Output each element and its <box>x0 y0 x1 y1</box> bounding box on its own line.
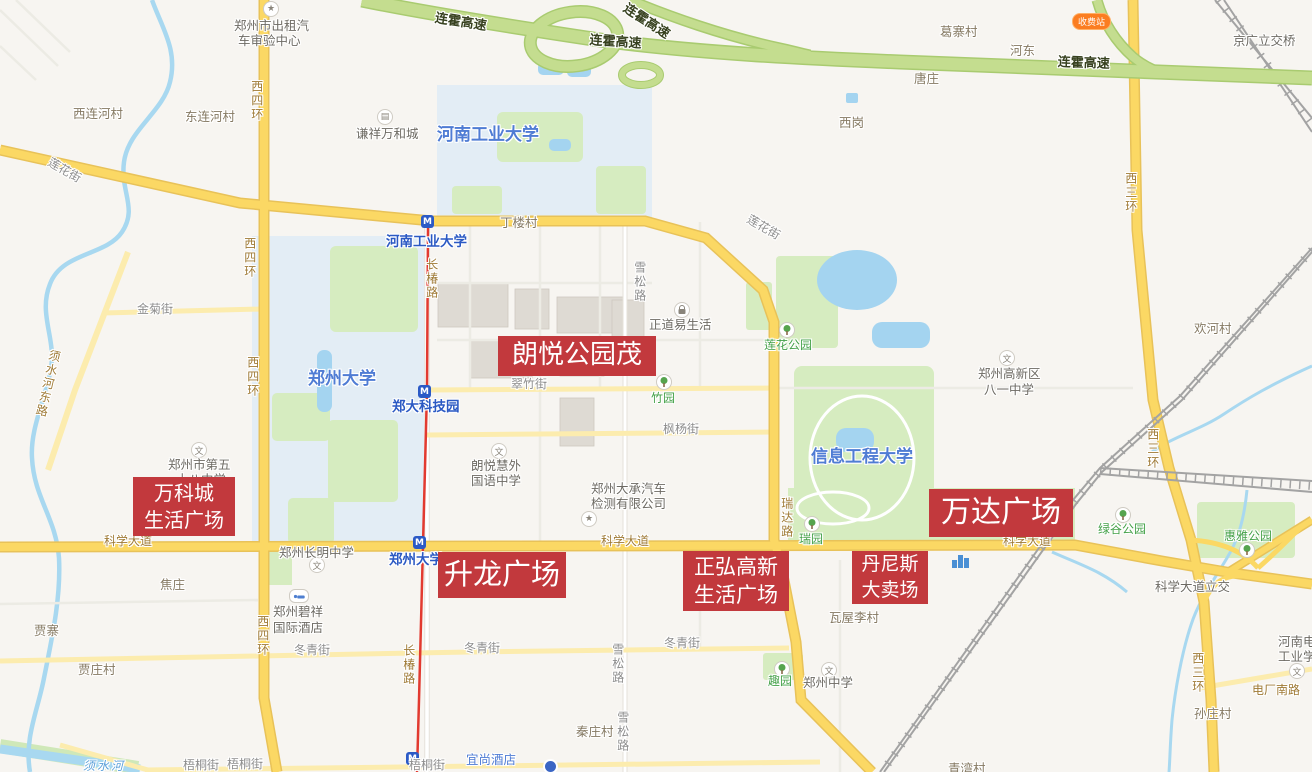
road-xisihuan-4: 西四环 <box>255 615 269 657</box>
street-jinjujie: 金菊街 <box>137 303 173 317</box>
poi-qianxiang-wanhecheng[interactable]: 谦祥万和城 <box>356 127 419 141</box>
tree-icon-lvgu <box>1115 507 1131 523</box>
poi-henan-dianli-line2[interactable]: 工业学 <box>1278 650 1312 664</box>
railway-layer <box>880 0 1312 772</box>
poi-yishang-hotel[interactable]: 宜尚酒店 <box>466 753 516 767</box>
landmark-wanda-plaza[interactable]: 万达广场 <box>929 489 1073 537</box>
street-wutongjie-2: 梧桐街 <box>227 758 263 772</box>
street-fengyangjie: 枫杨街 <box>663 423 699 437</box>
park-lvgu-gongyuan[interactable]: 绿谷公园 <box>1098 523 1146 537</box>
hwy-lianhuo-4: 连霍高速 <box>1057 56 1110 73</box>
street-xuesonglu-1: 雪松路 <box>632 261 646 303</box>
poi-zhengdao-yishenghuo[interactable]: 正道易生活 <box>649 318 712 332</box>
landmark-text: 生活广场 <box>694 581 778 609</box>
landmark-text: 生活广场 <box>144 507 224 534</box>
street-xuesonglu-3: 雪松路 <box>615 711 629 753</box>
school-icon-langyuehui: 文 <box>491 443 507 459</box>
poi-bixiang-hotel-line1[interactable]: 郑州碧祥 <box>273 605 323 619</box>
star-icon-1: ★ <box>263 1 279 17</box>
park-huiya-gongyuan[interactable]: 惠雅公园 <box>1224 530 1272 544</box>
poi-bayi-zhongxue-line1[interactable]: 郑州高新区 <box>978 367 1041 381</box>
village-qinzhuangcun: 秦庄村 <box>576 725 614 739</box>
tree-icon-lianhua <box>779 322 795 338</box>
village-dinglou: 丁楼村 <box>500 216 538 230</box>
school-icon-no58: 文 <box>191 442 207 458</box>
tree-icon-ruiyuan <box>804 516 820 532</box>
village-sunzhuangcun: 孙庄村 <box>1194 707 1232 721</box>
road-ruidalu: 瑞达路 <box>779 497 793 539</box>
road-kexuedadao-3: 科学大道 <box>1003 535 1051 549</box>
landmark-langyue-park-mall[interactable]: 朗悦公园茂 <box>498 336 656 376</box>
landmark-zhenghong-gaoxin-life-plaza[interactable]: 正弘高新 生活广场 <box>683 551 789 611</box>
star-icon-2: ★ <box>581 511 597 527</box>
road-changchunlu-1: 长椿路 <box>424 258 438 300</box>
metro-zhengzhou-daxue[interactable]: 郑州大学 <box>389 553 443 569</box>
park-ruiyuan[interactable]: 瑞园 <box>799 533 823 547</box>
road-changchunlu-2: 长椿路 <box>401 644 415 686</box>
road-kexuedadao-2: 科学大道 <box>601 535 649 549</box>
street-dongqingjie-1: 冬青街 <box>294 644 330 658</box>
road-xisihuan-2: 西四环 <box>242 237 256 279</box>
metro-icon-2[interactable]: M <box>418 385 431 398</box>
poi-henan-dianli-line1[interactable]: 河南电 <box>1278 635 1312 649</box>
landmark-text: 大卖场 <box>861 578 918 604</box>
village-qingwancun: 青湾村 <box>948 762 986 772</box>
park-lianhua-gongyuan[interactable]: 莲花公园 <box>764 339 812 353</box>
poi-kexuedadao-lijiao[interactable]: 科学大道立交 <box>1155 580 1230 594</box>
poi-no58-school-line1[interactable]: 郑州市第五 <box>168 458 231 472</box>
landmark-text: 升龙广场 <box>444 555 560 594</box>
park-quyuan[interactable]: 趣园 <box>768 675 792 689</box>
village-xilianhecun: 西连河村 <box>73 107 123 121</box>
poi-langyuehui-line2[interactable]: 国语中学 <box>471 474 521 488</box>
park-zhuyuan[interactable]: 竹园 <box>651 392 675 406</box>
poi-langyuehui-line1[interactable]: 朗悦慧外 <box>471 459 521 473</box>
expressway-fill <box>362 0 1312 85</box>
village-jiazhai: 贾寨 <box>34 624 59 638</box>
street-cuizhujie: 翠竹街 <box>511 378 547 392</box>
road-xisihuan-1: 西四环 <box>249 80 263 122</box>
village-gezhai: 葛寨村 <box>940 25 978 39</box>
tree-icon-zhuyuan <box>656 374 672 390</box>
landmark-wankecheng-life-plaza[interactable]: 万科城 生活广场 <box>133 477 235 536</box>
landmark-text: 万达广场 <box>941 493 1061 534</box>
road-dianchangnanlu: 电厂南路 <box>1252 684 1300 698</box>
village-xigang: 西岗 <box>839 116 864 130</box>
metro-icon-1[interactable]: M <box>421 215 434 228</box>
poi-dacheng-auto-line1[interactable]: 郑州大承汽车 <box>591 482 666 496</box>
village-tangzhuang: 唐庄 <box>914 72 939 86</box>
landmark-dennis-hypermarket[interactable]: 丹尼斯 大卖场 <box>852 551 928 604</box>
road-xisanhuan-1: 西三环 <box>1123 172 1137 214</box>
road-xisanhuan-3: 西三环 <box>1190 652 1204 694</box>
landmark-text: 万科城 <box>154 480 214 507</box>
poi-bixiang-hotel-line2[interactable]: 国际酒店 <box>273 621 323 635</box>
village-huanhecun: 欢河村 <box>1194 322 1232 336</box>
landmark-text: 朗悦公园茂 <box>512 338 642 373</box>
village-donglianhecun: 东连河村 <box>185 110 235 124</box>
hotel-icon <box>289 589 309 603</box>
village-jiazhuangcun: 贾庄村 <box>78 663 116 677</box>
metro-icon-3[interactable]: M <box>413 536 426 549</box>
tree-icon-huiya <box>1239 542 1255 558</box>
street-dongqingjie-3: 冬青街 <box>664 637 700 651</box>
street-wutongjie-3: 梧桐街 <box>409 759 445 772</box>
map-canvas[interactable]: 收费站 万科城 生活广场 朗悦公园茂 升龙广场 正弘高新 生活广场 丹尼斯 大卖… <box>0 0 1312 772</box>
landmark-text: 正弘高新 <box>694 553 778 581</box>
poi-zhengzhou-zhongxue[interactable]: 郑州中学 <box>803 676 853 690</box>
street-wutongjie-1: 梧桐街 <box>183 759 219 772</box>
uni-xinxi-gongcheng-daxue[interactable]: 信息工程大学 <box>811 448 913 468</box>
street-xuesonglu-2: 雪松路 <box>610 643 624 685</box>
metro-zhengda-kejiyuan[interactable]: 郑大科技园 <box>392 400 460 416</box>
uni-henan-gongye-daxue[interactable]: 河南工业大学 <box>437 126 539 146</box>
landmark-shenglong-plaza[interactable]: 升龙广场 <box>438 552 566 598</box>
road-kexuedadao-1: 科学大道 <box>104 535 152 549</box>
school-icon-bayi: 文 <box>999 350 1015 366</box>
village-jiaozhuang: 焦庄 <box>160 578 185 592</box>
building-icon: ▤ <box>377 109 393 125</box>
toll-station-badge: 收费站 <box>1072 13 1111 30</box>
poi-jingguang-bridge[interactable]: 京广立交桥 <box>1233 34 1296 48</box>
road-xisanhuan-2: 西三环 <box>1145 428 1159 470</box>
village-wawulicun: 瓦屋李村 <box>829 611 879 625</box>
poi-taxi-center-line1[interactable]: 郑州市出租汽 <box>234 19 309 33</box>
poi-taxi-center-line2[interactable]: 车审验中心 <box>238 34 301 48</box>
bars-icon <box>951 549 971 573</box>
village-hedong: 河东 <box>1010 44 1035 58</box>
uni-zhengzhou-daxue[interactable]: 郑州大学 <box>308 370 376 390</box>
landmark-text: 丹尼斯 <box>861 552 918 578</box>
street-dongqingjie-2: 冬青街 <box>464 642 500 656</box>
river-xushuihe: 须水河 <box>83 760 125 772</box>
poi-dacheng-auto-line2[interactable]: 检测有限公司 <box>591 497 666 511</box>
poi-bayi-zhongxue-line2[interactable]: 八一中学 <box>984 383 1034 397</box>
poi-changming-zhongxue[interactable]: 郑州长明中学 <box>279 546 354 560</box>
road-xisihuan-3: 西四环 <box>245 356 259 398</box>
bag-icon <box>674 302 690 318</box>
dot-icon[interactable] <box>543 759 558 772</box>
school-icon-dianli: 文 <box>1289 663 1305 679</box>
metro-henan-gongye-daxue[interactable]: 河南工业大学 <box>386 235 467 251</box>
